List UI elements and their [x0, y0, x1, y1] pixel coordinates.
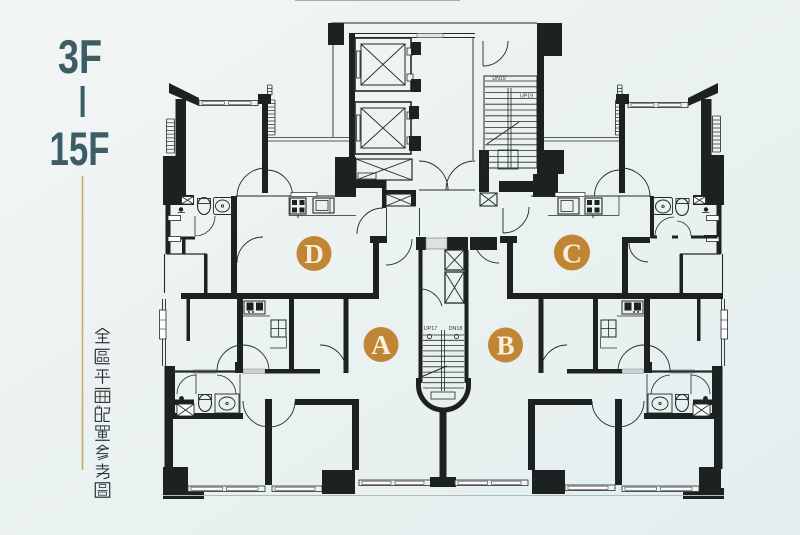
- svg-text:15F: 15F: [50, 122, 110, 175]
- svg-text:DN18: DN18: [449, 326, 463, 332]
- svg-text:B: B: [496, 331, 514, 361]
- svg-text:A: A: [371, 330, 391, 360]
- svg-text:D: D: [304, 239, 324, 269]
- svg-text:UP19: UP19: [520, 94, 533, 100]
- svg-text:UP17: UP17: [424, 326, 438, 332]
- svg-text:DN19: DN19: [492, 76, 505, 82]
- svg-text:3F: 3F: [58, 30, 102, 83]
- svg-text:C: C: [562, 238, 582, 269]
